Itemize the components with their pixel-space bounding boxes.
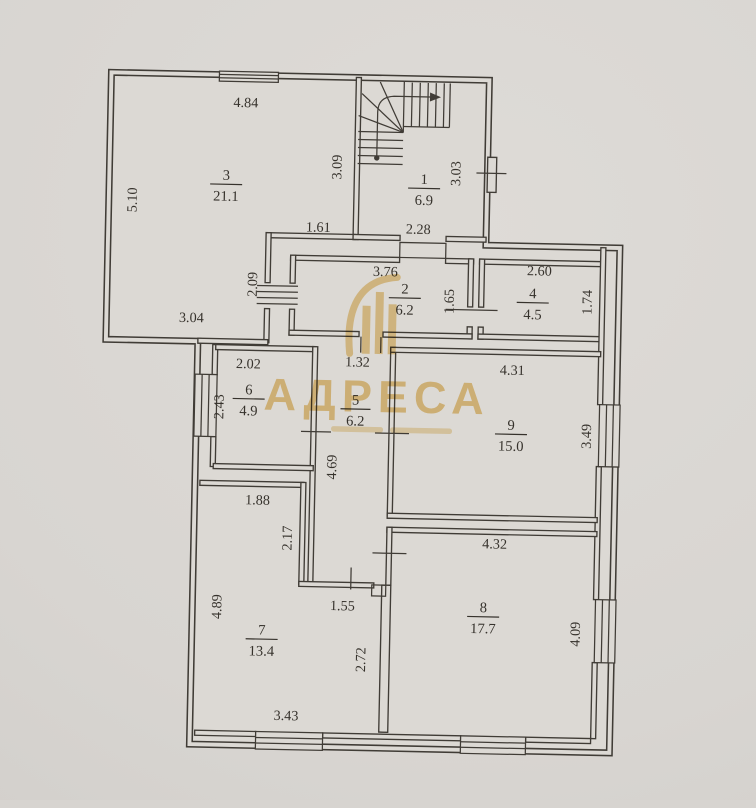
dim-room7-bottom: 3.43 [273, 708, 298, 725]
window-room8-bottom [460, 736, 525, 755]
dim-room7-left: 4.89 [209, 594, 226, 619]
dim-room2-right: 1.65 [441, 289, 458, 314]
room2-area: 6.2 [395, 302, 414, 318]
dim-room4-right: 1.74 [579, 290, 596, 315]
room8-area: 17.7 [470, 621, 496, 638]
room9-number: 9 [507, 418, 515, 434]
dim-room3-right: 3.09 [329, 155, 346, 180]
room4-number: 4 [529, 286, 537, 302]
window-room3-top [219, 71, 278, 82]
dim-room7-right: 2.72 [353, 647, 370, 672]
room4-area: 4.5 [523, 307, 542, 323]
room8-number: 8 [480, 600, 488, 616]
dim-room5-top: 1.32 [345, 354, 370, 371]
dim-room8-top: 4.32 [482, 536, 507, 553]
tick-room9-door [375, 433, 409, 434]
dim-room8-right: 4.09 [568, 622, 585, 647]
floor-plan-image: 3 21.1 1 6.9 2 6.2 4 4.5 6 4.9 5 6.2 9 1… [0, 0, 756, 808]
dim-room1-bottom: 2.28 [406, 222, 431, 239]
dim-room3-left: 5.10 [125, 187, 142, 212]
room3-area: 21.1 [213, 189, 239, 206]
room1-number: 1 [420, 172, 428, 188]
dim-room9-top: 4.31 [500, 363, 525, 380]
dim-room1-right: 3.03 [448, 161, 465, 186]
room7-number: 7 [258, 623, 266, 639]
dim-room6-top: 2.02 [236, 356, 261, 373]
dim-room6-left: 2.43 [211, 394, 228, 419]
dim-room3-top: 4.84 [233, 95, 258, 112]
window-room7-bottom [255, 732, 322, 751]
window-room8-right [594, 600, 616, 663]
dim-room7-upper-right: 2.17 [279, 526, 296, 551]
dim-room7-inner: 1.55 [330, 598, 355, 615]
room2-number: 2 [401, 281, 409, 297]
tick-room1 [476, 173, 506, 174]
dim-room9-right: 3.49 [579, 424, 596, 449]
dim-room3-notch: 1.61 [306, 219, 331, 236]
watermark-brand: АДРЕСА [263, 369, 490, 425]
room1-area: 6.9 [415, 193, 434, 209]
room7-area: 13.4 [248, 643, 275, 660]
window-room9-right [598, 405, 620, 467]
room9-area: 15.0 [498, 439, 524, 456]
wall-pier [487, 157, 497, 192]
dim-room7-top: 1.88 [245, 492, 270, 509]
dim-room3-door: 2.09 [245, 272, 262, 297]
dim-room3-bottom: 3.04 [179, 310, 204, 327]
dim-room4-top: 2.60 [527, 263, 552, 280]
room3-number: 3 [223, 168, 231, 184]
tick-room8-door [372, 553, 406, 554]
room6-area: 4.9 [239, 403, 258, 419]
dim-room5-left: 4.69 [324, 454, 341, 479]
room6-number: 6 [245, 382, 253, 398]
floor-plan-photo: 3 21.1 1 6.9 2 6.2 4 4.5 6 4.9 5 6.2 9 1… [0, 0, 756, 808]
tick-room6-door [301, 431, 331, 432]
